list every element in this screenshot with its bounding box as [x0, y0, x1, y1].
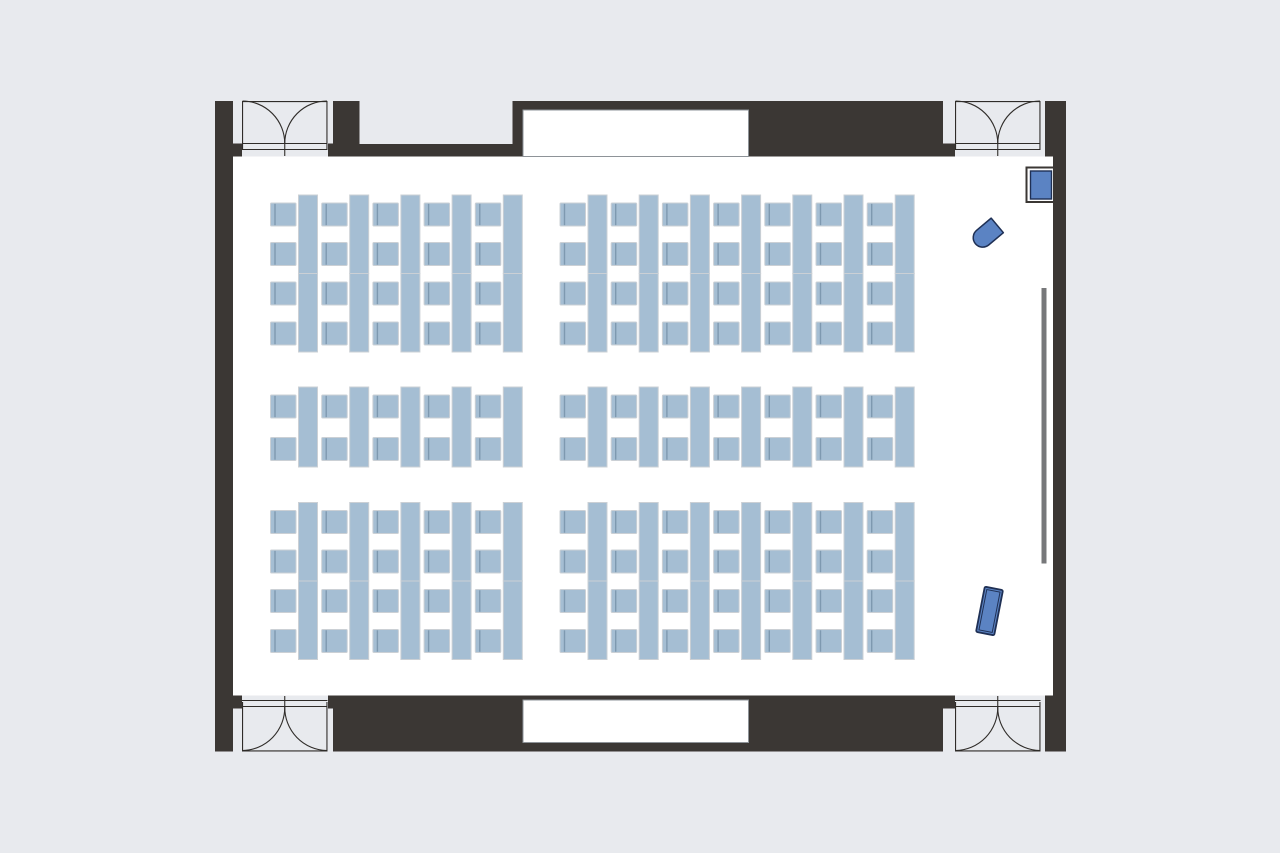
desk-segment — [690, 274, 709, 353]
chair — [560, 630, 586, 653]
chair — [611, 322, 637, 345]
chair — [560, 511, 586, 534]
chair — [611, 282, 637, 305]
chair — [611, 630, 637, 653]
chair — [714, 630, 740, 653]
desk-segment — [895, 581, 914, 660]
desk — [895, 387, 914, 467]
desk-segment — [401, 581, 420, 660]
desk-segment — [350, 503, 369, 582]
door-bottom-left — [242, 696, 328, 752]
chair — [662, 438, 688, 461]
desk — [452, 387, 471, 467]
chair — [611, 550, 637, 573]
chair — [373, 203, 399, 226]
chair — [714, 438, 740, 461]
desk-segment — [895, 503, 914, 582]
desk-segment — [503, 581, 522, 660]
chair — [560, 282, 586, 305]
chair — [867, 550, 893, 573]
chair — [662, 395, 688, 418]
chair — [662, 203, 688, 226]
chair — [322, 550, 348, 573]
chair — [373, 511, 399, 534]
desk-segment — [401, 503, 420, 582]
chair — [322, 282, 348, 305]
desk-segment — [350, 195, 369, 274]
chair — [271, 630, 297, 653]
chair — [816, 395, 842, 418]
chair — [373, 550, 399, 573]
chair — [475, 203, 501, 226]
desk — [588, 387, 607, 467]
chair — [475, 511, 501, 534]
chair — [475, 395, 501, 418]
desk-segment — [895, 195, 914, 274]
desk-segment — [639, 503, 658, 582]
desk — [350, 387, 369, 467]
chair — [816, 282, 842, 305]
desk — [639, 387, 658, 467]
chair — [373, 282, 399, 305]
chair — [271, 282, 297, 305]
wall-top-ledge-mid — [360, 144, 514, 157]
desk-segment — [588, 581, 607, 660]
desk-segment — [690, 581, 709, 660]
chair — [765, 630, 791, 653]
desk-segment — [350, 581, 369, 660]
desk-segment — [299, 274, 318, 353]
chair — [271, 395, 297, 418]
desk-segment — [742, 581, 761, 660]
door-top-right — [955, 101, 1041, 157]
chair — [611, 243, 637, 266]
desk-segment — [588, 195, 607, 274]
chair — [560, 243, 586, 266]
chair — [714, 590, 740, 613]
desk-segment — [588, 274, 607, 353]
desk-segment — [793, 503, 812, 582]
desk-segment — [503, 503, 522, 582]
chair — [714, 322, 740, 345]
chair — [271, 203, 297, 226]
chair — [475, 550, 501, 573]
desk-segment — [452, 274, 471, 353]
desk-segment — [742, 503, 761, 582]
chair — [475, 243, 501, 266]
desk-segment — [844, 274, 863, 353]
desk-segment — [452, 195, 471, 274]
chair — [424, 550, 450, 573]
desk-segment — [639, 581, 658, 660]
chair — [560, 438, 586, 461]
chair — [322, 630, 348, 653]
chair — [714, 282, 740, 305]
chair — [271, 550, 297, 573]
chair — [475, 438, 501, 461]
door-top-left — [242, 101, 328, 157]
wall-top-ledge-right — [943, 144, 955, 157]
wall-top-ledge-door-right — [328, 144, 334, 157]
chair — [611, 590, 637, 613]
desk-segment — [793, 581, 812, 660]
chair — [322, 322, 348, 345]
chair — [322, 395, 348, 418]
desk — [844, 387, 863, 467]
chair — [765, 438, 791, 461]
chair — [373, 243, 399, 266]
chair — [611, 511, 637, 534]
desk-segment — [588, 503, 607, 582]
chair — [765, 243, 791, 266]
chair — [560, 203, 586, 226]
floorplan-svg — [0, 0, 1280, 853]
chair — [816, 590, 842, 613]
desk-segment — [742, 195, 761, 274]
chair — [611, 438, 637, 461]
chair — [475, 322, 501, 345]
chair — [424, 395, 450, 418]
chair — [867, 590, 893, 613]
wall-top-ledge-left — [233, 144, 242, 157]
desk-segment — [793, 195, 812, 274]
chair — [560, 550, 586, 573]
chair — [816, 630, 842, 653]
chair — [373, 322, 399, 345]
chair — [714, 395, 740, 418]
chair — [611, 203, 637, 226]
chair — [424, 322, 450, 345]
door-bottom-right — [955, 696, 1041, 752]
chair — [816, 203, 842, 226]
chair — [373, 590, 399, 613]
chair — [714, 511, 740, 534]
chair — [867, 630, 893, 653]
wall-bottom-corner-right — [1045, 696, 1066, 752]
chair — [475, 590, 501, 613]
chair — [765, 550, 791, 573]
chair — [322, 438, 348, 461]
chair — [867, 203, 893, 226]
wall-top-corner-right — [1045, 101, 1066, 157]
desk-segment — [639, 195, 658, 274]
projection-screen-rail — [1042, 288, 1047, 564]
chair — [271, 590, 297, 613]
chair — [475, 630, 501, 653]
chair — [611, 395, 637, 418]
desk — [401, 387, 420, 467]
desk-segment — [844, 503, 863, 582]
chair — [816, 511, 842, 534]
chair — [424, 438, 450, 461]
desk-segment — [299, 581, 318, 660]
chair — [424, 243, 450, 266]
chair — [867, 322, 893, 345]
desk-segment — [742, 274, 761, 353]
chair — [322, 243, 348, 266]
chair — [271, 511, 297, 534]
floorplan-canvas — [0, 0, 1280, 853]
wall-top-pillar-1 — [333, 101, 360, 157]
chair — [424, 590, 450, 613]
chair — [662, 243, 688, 266]
chair — [271, 322, 297, 345]
chair — [714, 203, 740, 226]
chair — [475, 282, 501, 305]
chair — [560, 590, 586, 613]
chair — [765, 511, 791, 534]
chair — [765, 322, 791, 345]
chair — [424, 511, 450, 534]
chair — [662, 322, 688, 345]
desk-segment — [793, 274, 812, 353]
chair — [560, 322, 586, 345]
chair — [662, 282, 688, 305]
presenter-display-panel — [1031, 171, 1052, 199]
chair — [560, 395, 586, 418]
chair — [714, 243, 740, 266]
wall-bottom-ledge-left — [233, 696, 242, 709]
chair — [373, 395, 399, 418]
chair — [662, 590, 688, 613]
desk-segment — [299, 503, 318, 582]
chair — [867, 243, 893, 266]
desk — [503, 387, 522, 467]
chair — [662, 550, 688, 573]
chair — [373, 630, 399, 653]
desk-segment — [503, 274, 522, 353]
desk-segment — [452, 581, 471, 660]
chair — [816, 243, 842, 266]
chair — [322, 590, 348, 613]
chair — [867, 395, 893, 418]
desk-segment — [690, 503, 709, 582]
chair — [765, 590, 791, 613]
desk-segment — [299, 195, 318, 274]
presenter-display — [1027, 168, 1055, 203]
desk-segment — [452, 503, 471, 582]
chair — [867, 438, 893, 461]
chair — [816, 322, 842, 345]
wall-bottom-ledge-right — [943, 696, 955, 709]
desk — [690, 387, 709, 467]
wall-top-pillar-2 — [513, 101, 524, 157]
desk-segment — [503, 195, 522, 274]
chair — [714, 550, 740, 573]
desk-segment — [690, 195, 709, 274]
desk-segment — [895, 274, 914, 353]
chair — [322, 203, 348, 226]
chair — [765, 395, 791, 418]
chair — [867, 282, 893, 305]
desk-segment — [639, 274, 658, 353]
chair — [765, 282, 791, 305]
wall-bottom-ledge-door-right — [328, 696, 334, 709]
chair — [424, 282, 450, 305]
chair — [271, 243, 297, 266]
chair — [765, 203, 791, 226]
desk — [742, 387, 761, 467]
desk-segment — [401, 274, 420, 353]
wall-top-thick-right — [749, 101, 944, 157]
chair — [867, 511, 893, 534]
chair — [816, 550, 842, 573]
desk — [793, 387, 812, 467]
chair — [662, 630, 688, 653]
desk — [299, 387, 318, 467]
desk-segment — [401, 195, 420, 274]
chair — [424, 630, 450, 653]
wall-niche-bottom — [523, 700, 749, 743]
chair — [322, 511, 348, 534]
desk-segment — [350, 274, 369, 353]
chair — [373, 438, 399, 461]
chair — [424, 203, 450, 226]
wall-niche-top — [523, 110, 749, 157]
chair — [271, 438, 297, 461]
desk-segment — [844, 195, 863, 274]
chair — [816, 438, 842, 461]
desk-segment — [844, 581, 863, 660]
wall-left — [215, 101, 233, 752]
chair — [662, 511, 688, 534]
